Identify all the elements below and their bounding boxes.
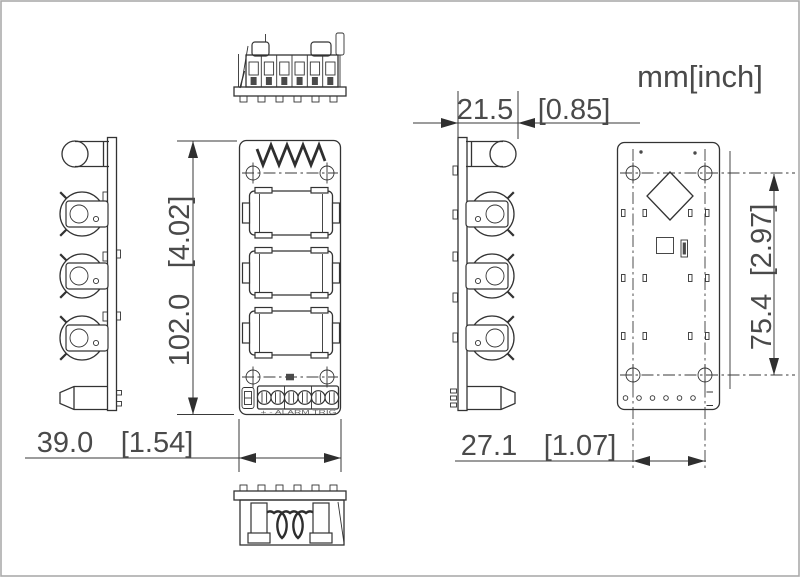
pcb-edge-bottom [234, 491, 346, 500]
screw-terminal [298, 391, 312, 405]
terminal-strip-label: + - ALARM TRIG [261, 410, 337, 416]
dimension-body-height: 102.0 [4.02] [164, 141, 237, 415]
bnc-connector [466, 192, 514, 236]
dim-spacing-y-mm: 75.4 [746, 294, 778, 350]
drawing-sheet: + - ALARM TRIG [0, 0, 800, 577]
bnc-connector [60, 192, 108, 236]
screw-terminal [258, 391, 272, 405]
bnc-connector [60, 316, 108, 360]
screw-terminal [312, 391, 326, 405]
post [313, 503, 329, 534]
dim-width-mm: 39.0 [37, 427, 93, 459]
units-label: mm[inch] [637, 59, 763, 94]
dimension-side-depth: 21.5 [0.85] [413, 91, 640, 139]
dim-height-mm: 102.0 [164, 294, 196, 367]
pcb-strip [108, 138, 117, 411]
dimension-hole-spacing-y: 75.4 [2.97] [746, 174, 779, 375]
bnc-connector [466, 254, 514, 298]
diamond-cutout [647, 172, 693, 220]
dimension-hole-spacing-x: 27.1 [1.07] [455, 430, 706, 466]
top-view-pcb-tab [336, 33, 344, 55]
dim-spacing-x-mm: 27.1 [461, 430, 517, 462]
square-cutout [657, 238, 674, 254]
dim-width-inch: [1.54] [121, 427, 194, 459]
pcb-edge-top [234, 87, 346, 96]
terminal-side [467, 387, 515, 410]
front-view: + - ALARM TRIG [240, 141, 341, 416]
left-side-view [60, 138, 122, 411]
component-chip [286, 374, 294, 381]
dimension-body-width: 39.0 [1.54] [25, 419, 341, 472]
dim-depth-inch: [0.85] [538, 94, 611, 126]
solder-pins [240, 485, 337, 491]
screw-terminal [271, 391, 285, 405]
transformer [243, 188, 340, 239]
dim-depth-mm: 21.5 [457, 94, 513, 126]
right-side-view [451, 138, 517, 411]
dim-spacing-x-inch: [1.07] [544, 430, 617, 462]
post [251, 503, 267, 534]
transformer [243, 308, 340, 359]
bottom-view [234, 485, 346, 545]
capacitor-side [466, 142, 503, 167]
front-body-outline [240, 141, 341, 415]
spring-coil [257, 145, 325, 165]
dim-height-inch: [4.02] [164, 196, 196, 269]
solder-pins [240, 96, 337, 102]
screw-terminal [285, 391, 299, 405]
terminal-side [60, 387, 108, 410]
bnc-connector [466, 316, 514, 360]
capacitor-side [75, 142, 109, 167]
pad-ticks [622, 333, 710, 340]
technical-drawing-canvas: + - ALARM TRIG [0, 0, 800, 577]
top-view [234, 33, 346, 102]
capacitor [311, 42, 331, 56]
screw-terminal [325, 391, 339, 405]
transformer [243, 248, 340, 299]
dim-spacing-y-inch: [2.97] [746, 204, 778, 277]
bnc-connector [60, 254, 108, 298]
pad-ticks [622, 275, 710, 282]
vent-holes [623, 396, 695, 401]
capacitor [252, 42, 269, 56]
